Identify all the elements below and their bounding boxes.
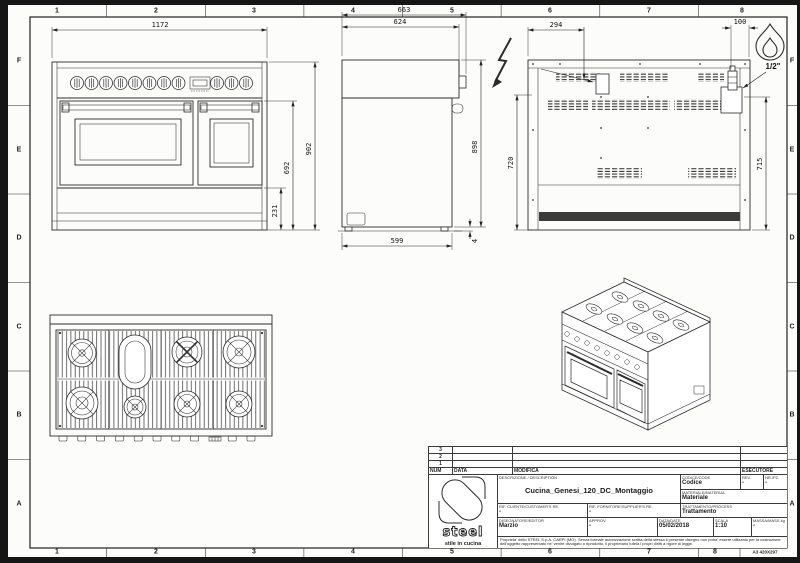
drawing-sheet: 1172 231 692 902 xyxy=(0,0,800,563)
rif-fornitore-cell: RIF. FORNITORE/SUPPLIER'S RE. - xyxy=(587,503,680,517)
electric-bolt-icon xyxy=(492,38,511,88)
grid-row-label: D xyxy=(16,235,21,242)
grid-row-label: F xyxy=(790,58,794,65)
burner-1 xyxy=(68,339,96,367)
disegnatore-value: Marzio xyxy=(498,523,587,530)
codice-value: Codice xyxy=(681,480,740,487)
gas-flame-icon xyxy=(756,24,784,60)
rating-label xyxy=(347,213,365,225)
side-handle xyxy=(452,104,463,113)
approv-value: - xyxy=(588,523,657,530)
dim-side-foot: 4 xyxy=(471,239,479,243)
grid-col-label: 3 xyxy=(252,549,256,556)
control-knobs xyxy=(71,77,253,90)
right-oven-door xyxy=(198,101,262,185)
rif-cliente-cell: RIF. CLIENTE/CUSTOMER'S RE. - xyxy=(497,503,587,517)
description-cell: DESCRIZIONE / DESCRIPTION Cucina_Genesi_… xyxy=(497,474,680,503)
gas-connection xyxy=(721,66,742,113)
dim-side-depth-total: 663 xyxy=(398,6,411,14)
grid-row-label: D xyxy=(789,235,794,242)
grid-col-label: 7 xyxy=(647,549,651,556)
trattamento-value: Trattamento xyxy=(681,509,787,516)
revision-cell xyxy=(740,453,787,460)
approv-cell: APPROV. - xyxy=(587,517,657,536)
dim-rear-height-right: 715 xyxy=(756,158,764,171)
grid-col-label: 3 xyxy=(252,8,256,15)
revision-row-num: 2 xyxy=(428,453,452,460)
revision-cell xyxy=(740,446,787,453)
rear-plinth xyxy=(539,212,740,221)
grid-col-label: 5 xyxy=(450,8,454,15)
top-view xyxy=(50,315,272,441)
description-label: DESCRIZIONE / DESCRIPTION xyxy=(498,475,680,480)
scala-cell: SCALA 1:10 xyxy=(713,517,751,536)
dim-rear-height-left: 720 xyxy=(507,157,515,170)
burner-2 xyxy=(66,387,98,419)
grid-col-label: 4 xyxy=(351,8,355,15)
materiale-cell: MATERIALE/MATERIAL Materiale xyxy=(680,489,787,503)
logo-text: steel xyxy=(442,525,483,540)
revision-row-num: 1 xyxy=(428,460,452,467)
rif-fornitore-value: - xyxy=(588,509,680,516)
grid-col-label: 1 xyxy=(55,549,59,556)
date-value: 05/02/2018 xyxy=(658,523,713,530)
disegnatore-cell: DISEGNATORE/EDITOR Marzio xyxy=(497,517,587,536)
dim-side-height: 898 xyxy=(471,141,479,154)
rear-screws xyxy=(532,63,746,201)
steel-logo-mark xyxy=(437,475,488,525)
revision-col-modifica-header: MODIFICA xyxy=(512,467,740,474)
revision-cell xyxy=(452,460,512,467)
materiale-value: Materiale xyxy=(681,495,787,502)
drawing-title: Cucina_Genesi_120_DC_Montaggio xyxy=(498,486,680,495)
nrpz-value: - xyxy=(764,480,787,487)
burner-4 xyxy=(172,337,202,367)
side-dimensions: 663 624 898 599 4 xyxy=(342,6,486,250)
storage-drawer xyxy=(52,188,267,221)
burner-6 xyxy=(223,336,255,368)
massa-cell: MASSA/MASS kg - xyxy=(751,517,787,536)
grid-col-label: 7 xyxy=(647,8,651,15)
dim-front-base-height: 231 xyxy=(271,205,279,218)
rif-cliente-value: - xyxy=(498,509,587,516)
massa-value: - xyxy=(752,523,787,530)
revision-cell xyxy=(512,446,740,453)
revision-row-num: 3 xyxy=(428,446,452,453)
rev-cell: REV. - xyxy=(740,474,763,489)
revision-cell xyxy=(512,460,740,467)
revision-cell xyxy=(452,453,512,460)
front-view: 1172 231 692 902 xyxy=(52,21,320,230)
trattamento-cell: TRATTAMENTO/PROCESS Trattamento xyxy=(680,503,787,517)
burner-5 xyxy=(174,391,200,417)
grid-col-label: 5 xyxy=(450,549,454,556)
grid-row-label: E xyxy=(17,147,22,154)
isometric-view xyxy=(562,278,710,430)
rear-dimensions: 294 100 720 715 1/2" xyxy=(507,18,781,230)
rev-value: - xyxy=(741,480,763,487)
grid-col-label: 4 xyxy=(351,549,355,556)
grid-row-label: F xyxy=(17,58,21,65)
revision-col-num-header: NUM xyxy=(428,467,452,474)
sheet-format-label: A3 420X297 xyxy=(752,550,777,555)
grid-row-label: C xyxy=(16,324,21,331)
grid-col-label: 1 xyxy=(55,8,59,15)
grid-row-label: A xyxy=(789,501,794,508)
grid-col-label: 6 xyxy=(548,549,552,556)
grid-row-label: B xyxy=(16,412,21,419)
dim-rear-gas-offset: 100 xyxy=(734,18,747,26)
rear-vents xyxy=(548,72,736,179)
dim-rear-electric-offset: 294 xyxy=(550,21,563,29)
side-view: 663 624 898 599 4 xyxy=(338,6,486,250)
codice-cell: CODICE/CODE Codice xyxy=(680,474,740,489)
grid-col-label: 6 xyxy=(548,8,552,15)
grid-row-label: C xyxy=(789,324,794,331)
grid-row-label: B xyxy=(789,412,794,419)
revision-cell xyxy=(512,453,740,460)
revision-col-data-header: DATA xyxy=(452,467,512,474)
logo-tagline: stile in cucina xyxy=(445,541,482,547)
electric-connection-box xyxy=(596,74,609,94)
dim-side-depth-top: 624 xyxy=(394,18,407,26)
dim-front-door-height: 692 xyxy=(283,162,291,175)
left-oven-door xyxy=(60,101,193,185)
grid-row-label: E xyxy=(790,147,795,154)
legal-notice: Proprieta' dello STEEL S.p.A. CARPI (MO)… xyxy=(497,536,787,548)
grid-col-label: 2 xyxy=(154,8,158,15)
burner-oval xyxy=(119,335,151,389)
scala-value: 1:10 xyxy=(714,523,751,530)
grid-col-label: 2 xyxy=(154,549,158,556)
rear-view: 294 100 720 715 1/2" xyxy=(507,18,781,230)
dim-front-width: 1172 xyxy=(152,21,169,29)
dim-side-base-depth: 599 xyxy=(391,237,404,245)
revision-cell xyxy=(740,460,787,467)
revision-col-esecutore-header: ESECUTORE xyxy=(740,467,787,474)
gas-connection-size: 1/2" xyxy=(766,62,781,71)
knob-tabs xyxy=(59,436,255,441)
grid-row-label: A xyxy=(16,501,21,508)
front-dimensions: 1172 231 692 902 xyxy=(52,21,320,230)
dim-front-total-height: 902 xyxy=(305,143,313,156)
control-display xyxy=(190,77,210,91)
grid-col-label: 8 xyxy=(740,8,744,15)
burner-7 xyxy=(226,391,252,417)
nrpz-cell: NR./PZ. - xyxy=(763,474,787,489)
company-logo: steel stile in cucina xyxy=(428,474,497,548)
revision-cell xyxy=(452,446,512,453)
date-cell: DATA/DATE 05/02/2018 xyxy=(657,517,713,536)
grid-col-label: 8 xyxy=(713,549,717,556)
burner-3 xyxy=(124,396,146,418)
